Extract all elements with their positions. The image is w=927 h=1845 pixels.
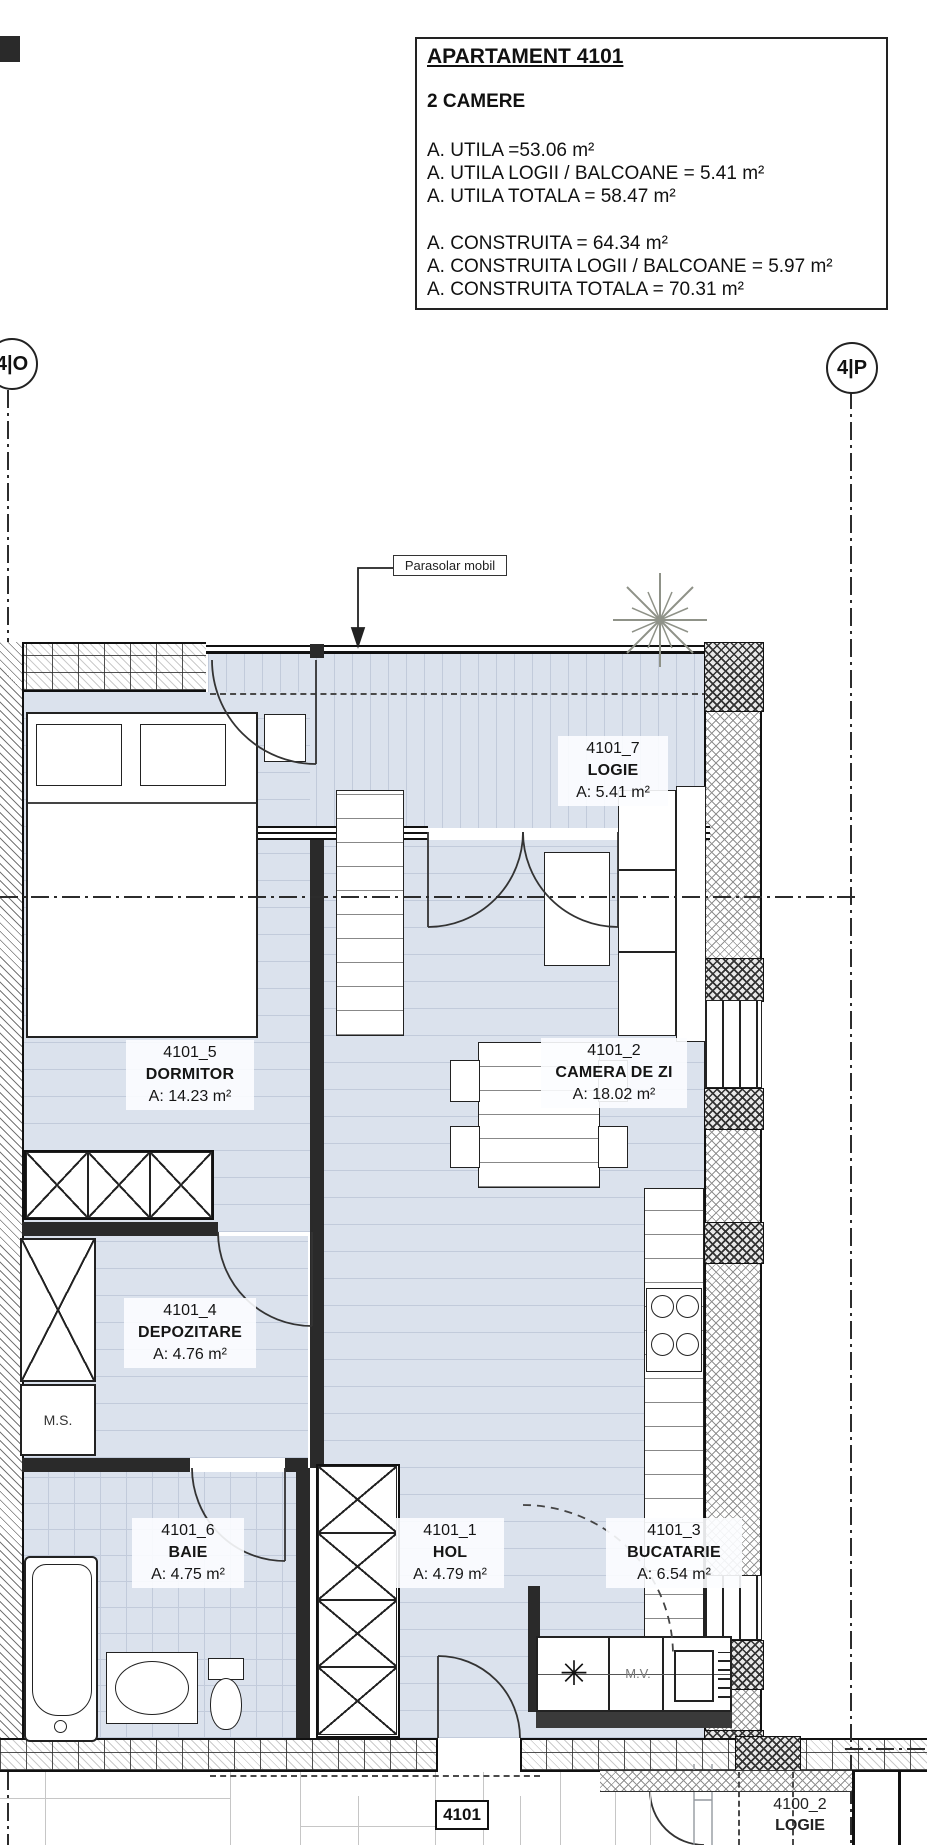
axis-line-left-upper <box>7 390 9 642</box>
area-line: A. CONSTRUITA TOTALA = 70.31 m² <box>427 278 876 301</box>
room-area: A: 5.41 m² <box>561 782 665 804</box>
corridor-tile-line <box>520 1796 521 1845</box>
title-block: APARTAMENT 4101 2 CAMERE A. UTILA =53.06… <box>415 37 888 310</box>
room-area: A: 6.54 m² <box>609 1564 739 1586</box>
room-id: 4101_5 <box>129 1042 251 1064</box>
neighbor-wall-line <box>898 1772 901 1845</box>
area-line: A. CONSTRUITA = 64.34 m² <box>427 232 876 255</box>
room-area: A: 4.75 m² <box>135 1564 241 1586</box>
parasolar-callout: Parasolar mobil <box>393 555 507 576</box>
plant-icon <box>613 573 707 667</box>
room-id: 4101_1 <box>399 1520 501 1542</box>
area-line: A. UTILA =53.06 m² <box>427 139 876 162</box>
axis-line-horizontal <box>0 896 856 898</box>
room-name: HOL <box>399 1542 501 1564</box>
area-line: A. CONSTRUITA LOGII / BALCOANE = 5.97 m² <box>427 255 876 278</box>
corridor-tile-line <box>0 1798 230 1799</box>
room-name: CAMERA DE ZI <box>544 1062 684 1084</box>
title-block-type: 2 CAMERE <box>427 90 876 113</box>
corridor-tile-line <box>358 1796 359 1845</box>
room-name: BAIE <box>135 1542 241 1564</box>
apartment-number-tag: 4101 <box>435 1800 489 1830</box>
room-area: A: 14.23 m² <box>129 1086 251 1108</box>
neighbor-logie-label: 4100_2 LOGIE <box>742 1794 858 1836</box>
room-area: A: 4.76 m² <box>127 1344 253 1366</box>
room-id: 4101_4 <box>127 1300 253 1322</box>
room-id: 4101_7 <box>561 738 665 760</box>
corridor-tile-line <box>300 1826 435 1827</box>
threshold-dashed-line <box>210 1775 540 1777</box>
room-label-camera-de-zi: 4101_2 CAMERA DE ZI A: 18.02 m² <box>541 1038 687 1108</box>
leader-arrowhead <box>352 628 364 646</box>
door-arc-neighbor <box>650 1791 704 1845</box>
neighbor-tile-line <box>615 1792 616 1845</box>
axis-line-left-lower <box>7 1772 9 1845</box>
room-name: BUCATARIE <box>609 1542 739 1564</box>
leader-line <box>358 568 393 630</box>
axis-line-right <box>850 391 852 1845</box>
room-id: 4101_2 <box>544 1040 684 1062</box>
room-label-baie: 4101_6 BAIE A: 4.75 m² <box>132 1518 244 1588</box>
axis-marker-right-label: 4|P <box>837 357 867 380</box>
axis-marker-left-label: 4|O <box>0 353 28 376</box>
room-name: DEPOZITARE <box>127 1322 253 1344</box>
room-label-depozitare: 4101_4 DEPOZITARE A: 4.76 m² <box>124 1298 256 1368</box>
corridor-tile-line <box>45 1772 46 1845</box>
corridor-tile-line <box>560 1772 561 1845</box>
area-line: A. UTILA LOGII / BALCOANE = 5.41 m² <box>427 162 876 185</box>
door-arc-logie-right <box>523 832 618 927</box>
neighbor-logie-hatch-band <box>600 1770 852 1792</box>
area-line: A. UTILA TOTALA = 58.47 m² <box>427 185 876 208</box>
room-id: 4101_6 <box>135 1520 241 1542</box>
door-arc-entrance <box>438 1656 520 1738</box>
corridor-tile-line <box>300 1772 301 1845</box>
room-area: A: 4.79 m² <box>399 1564 501 1586</box>
neighbor-tile-line <box>650 1792 651 1845</box>
room-area: A: 18.02 m² <box>544 1084 684 1106</box>
door-arc-logie-left <box>428 832 523 927</box>
room-name: LOGIE <box>561 760 665 782</box>
room-label-logie: 4101_7 LOGIE A: 5.41 m² <box>558 736 668 806</box>
axis-line-horizontal-bottom <box>845 1748 927 1750</box>
room-id: 4101_3 <box>609 1520 739 1542</box>
corridor-tile-line <box>230 1772 231 1845</box>
room-name: DORMITOR <box>129 1064 251 1086</box>
door-arc-bedroom <box>212 660 316 764</box>
room-label-dormitor: 4101_5 DORMITOR A: 14.23 m² <box>126 1040 254 1110</box>
room-label-bucatarie: 4101_3 BUCATARIE A: 6.54 m² <box>606 1518 742 1588</box>
floorplan-page: ✳ M.V. M.S. <box>0 0 927 1845</box>
axis-marker-right: 4|P <box>826 342 878 394</box>
apartment-number: 4101 <box>443 1805 481 1825</box>
title-block-title: APARTAMENT 4101 <box>427 45 876 68</box>
room-label-hol: 4101_1 HOL A: 4.79 m² <box>396 1518 504 1588</box>
neighbor-room-name: LOGIE <box>742 1815 858 1836</box>
neighbor-room-id: 4100_2 <box>742 1794 858 1815</box>
neighbor-dashed-line <box>738 1772 740 1845</box>
